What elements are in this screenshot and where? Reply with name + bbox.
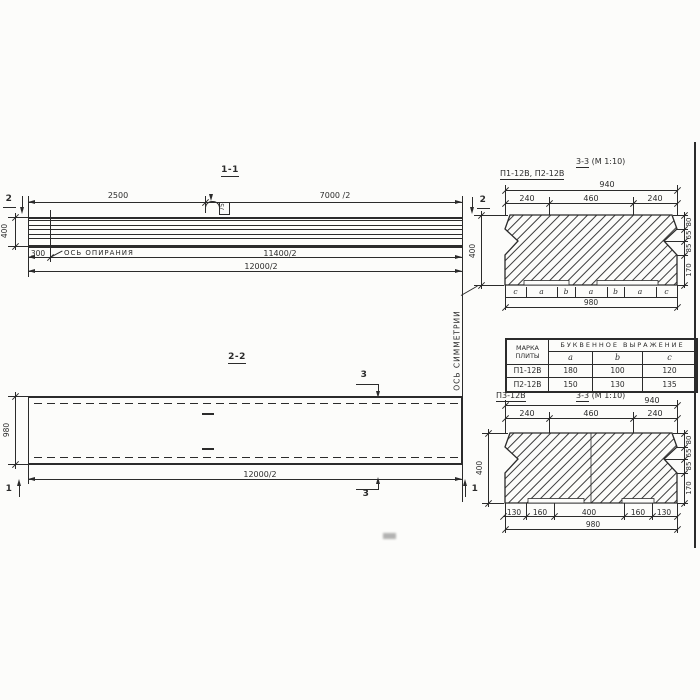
bottom-recess	[622, 499, 654, 504]
hidden-line	[34, 403, 458, 405]
cut-marker-arrow	[463, 479, 467, 486]
scan-artifact	[383, 533, 396, 539]
beam-top-edge	[28, 217, 462, 219]
dim-label: 7000 /2	[300, 191, 370, 200]
cut-marker-2-left: 2	[2, 195, 16, 204]
dim-label: 400	[0, 216, 10, 246]
section-title-text: 1-1	[221, 165, 239, 177]
section-title: 3-3 (М 1:10)	[576, 157, 646, 166]
marks-label: П3-12В	[496, 391, 556, 400]
dim-line	[505, 418, 677, 419]
dim-label: 980	[2, 415, 12, 445]
table-cell-mark: П2-12В	[507, 378, 549, 391]
table-cell: 150	[549, 378, 593, 391]
dim-label: 12000/2	[233, 262, 289, 271]
dim-label: 160	[624, 508, 652, 517]
dim-line	[505, 529, 677, 530]
center-mark	[202, 413, 214, 415]
ext-line	[28, 465, 29, 484]
segment-letter: c	[505, 287, 526, 296]
table-col-b: b	[593, 352, 643, 365]
dim-line	[28, 479, 462, 480]
beam-line	[28, 229, 462, 230]
loop-tag-label: 75	[218, 192, 228, 222]
cut-marker-1-left: 1	[3, 485, 15, 494]
leader-line	[461, 286, 478, 296]
cut-marker-3-top: 3	[356, 371, 372, 380]
ext-line	[8, 396, 28, 397]
dim-label: 170	[684, 473, 694, 503]
slab-outline	[28, 396, 462, 465]
dim-arrow	[455, 200, 462, 204]
dim-arrow	[28, 477, 35, 481]
dim-label: 940	[637, 396, 667, 405]
ext-line	[8, 217, 28, 218]
segment-letter: a	[526, 287, 557, 296]
cut-marker-arrow	[17, 479, 21, 486]
dim-line	[505, 307, 677, 308]
center-mark	[202, 448, 214, 450]
marks-label: П1-12В, П2-12В	[500, 169, 580, 178]
segment-letter: b	[557, 287, 575, 296]
symmetry-axis-line	[462, 196, 463, 502]
section-title-text: 2-2	[228, 352, 246, 364]
section-title: 3-3 (М 1:10)	[576, 391, 646, 400]
dim-label: 400	[475, 453, 485, 483]
section-scale: (М 1:10)	[592, 157, 626, 166]
dim-arrow	[455, 269, 462, 273]
dim-label: 240	[513, 194, 541, 203]
dim-label: 980	[576, 298, 606, 307]
section-title: 1-1	[213, 166, 247, 175]
dim-arrow	[455, 477, 462, 481]
beam-line	[28, 238, 462, 239]
section-title-text: 3-3	[576, 157, 589, 168]
bottom-recess	[528, 499, 584, 504]
cut-marker-underline	[3, 207, 16, 208]
cut-marker-1-right: 1	[469, 485, 481, 494]
dim-label: 240	[641, 409, 669, 418]
sheet-border-line	[694, 142, 696, 548]
dim-label: 12000/2	[232, 470, 288, 479]
beam-line	[28, 234, 462, 235]
cut-marker-underline	[356, 384, 378, 385]
table-cell: 180	[549, 365, 593, 378]
dim-arrow	[28, 200, 35, 204]
dim-line	[28, 271, 462, 272]
bottom-recess	[524, 281, 569, 286]
cut-marker-underline	[477, 208, 490, 209]
cut-marker-3-bottom: 3	[358, 490, 374, 499]
symmetry-axis-label: ОСЬ СИММЕТРИИ	[453, 296, 462, 406]
ext-line	[8, 246, 28, 247]
table-cell: 120	[643, 365, 696, 378]
dim-label: 130	[650, 508, 678, 517]
dim-label: 300	[27, 249, 49, 258]
bottom-recess	[597, 281, 658, 286]
section-scale: (М 1:10)	[592, 391, 626, 400]
cut-marker-arrow	[470, 207, 474, 214]
dim-label: 2500	[95, 191, 141, 200]
dim-label: 400	[468, 236, 478, 266]
segment-letter: c	[656, 287, 677, 296]
dim-arrow	[455, 255, 462, 259]
drawing-sheet: 1-1 2500 7000 /2 2 2 75	[0, 0, 700, 700]
dim-label: 460	[577, 194, 605, 203]
beam-line	[28, 225, 462, 226]
dim-line	[488, 429, 489, 507]
dim-line	[15, 392, 16, 469]
table-header-group: БУКВЕННОЕ ВЫРАЖЕНИЕ	[549, 340, 696, 352]
dim-arrow	[28, 269, 35, 273]
dim-label: 160	[526, 508, 554, 517]
table-cell: 135	[643, 378, 696, 391]
cut-marker-arrow	[376, 477, 380, 484]
dim-label: 980	[578, 520, 608, 529]
dim-line	[505, 190, 677, 191]
dim-label: 11400/2	[253, 249, 307, 258]
ext-line	[28, 196, 29, 277]
ext-line	[482, 503, 504, 504]
dim-label: 940	[592, 180, 622, 189]
segment-letter: a	[624, 287, 656, 296]
section-title-text: 3-3	[576, 391, 589, 402]
table-col-c: c	[643, 352, 696, 365]
section-title: 2-2	[220, 353, 254, 362]
section-outline	[505, 215, 677, 285]
cut-marker-2-right: 2	[476, 196, 490, 205]
table-cell-mark: П1-12В	[507, 365, 549, 378]
segment-letter: b	[607, 287, 624, 296]
dim-label: 400	[575, 508, 603, 517]
dim-line	[505, 203, 677, 204]
lifting-loop-arrow	[209, 194, 213, 201]
cut-marker-arrow	[20, 207, 24, 214]
dim-line	[505, 405, 677, 406]
beam-bottom-edge	[28, 246, 462, 248]
support-axis-label: ОСЬ ОПИРАНИЯ	[64, 249, 134, 258]
dim-line	[481, 211, 482, 289]
ext-line	[8, 464, 28, 465]
table-col-a: a	[549, 352, 593, 365]
dim-label: 460	[577, 409, 605, 418]
dim-line	[28, 202, 462, 203]
beam-line	[28, 220, 462, 221]
table-cell: 130	[593, 378, 643, 391]
dim-label: 170	[684, 255, 694, 285]
dim-label: 240	[513, 409, 541, 418]
table-header-mark: МАРКА ПЛИТЫ	[507, 340, 549, 365]
segment-letter: a	[575, 287, 607, 296]
table-cell: 100	[593, 365, 643, 378]
hidden-line	[34, 457, 458, 459]
plate-marks-table: МАРКА ПЛИТЫ БУКВЕННОЕ ВЫРАЖЕНИЕ a b c П1…	[505, 338, 698, 393]
dim-label: 240	[641, 194, 669, 203]
